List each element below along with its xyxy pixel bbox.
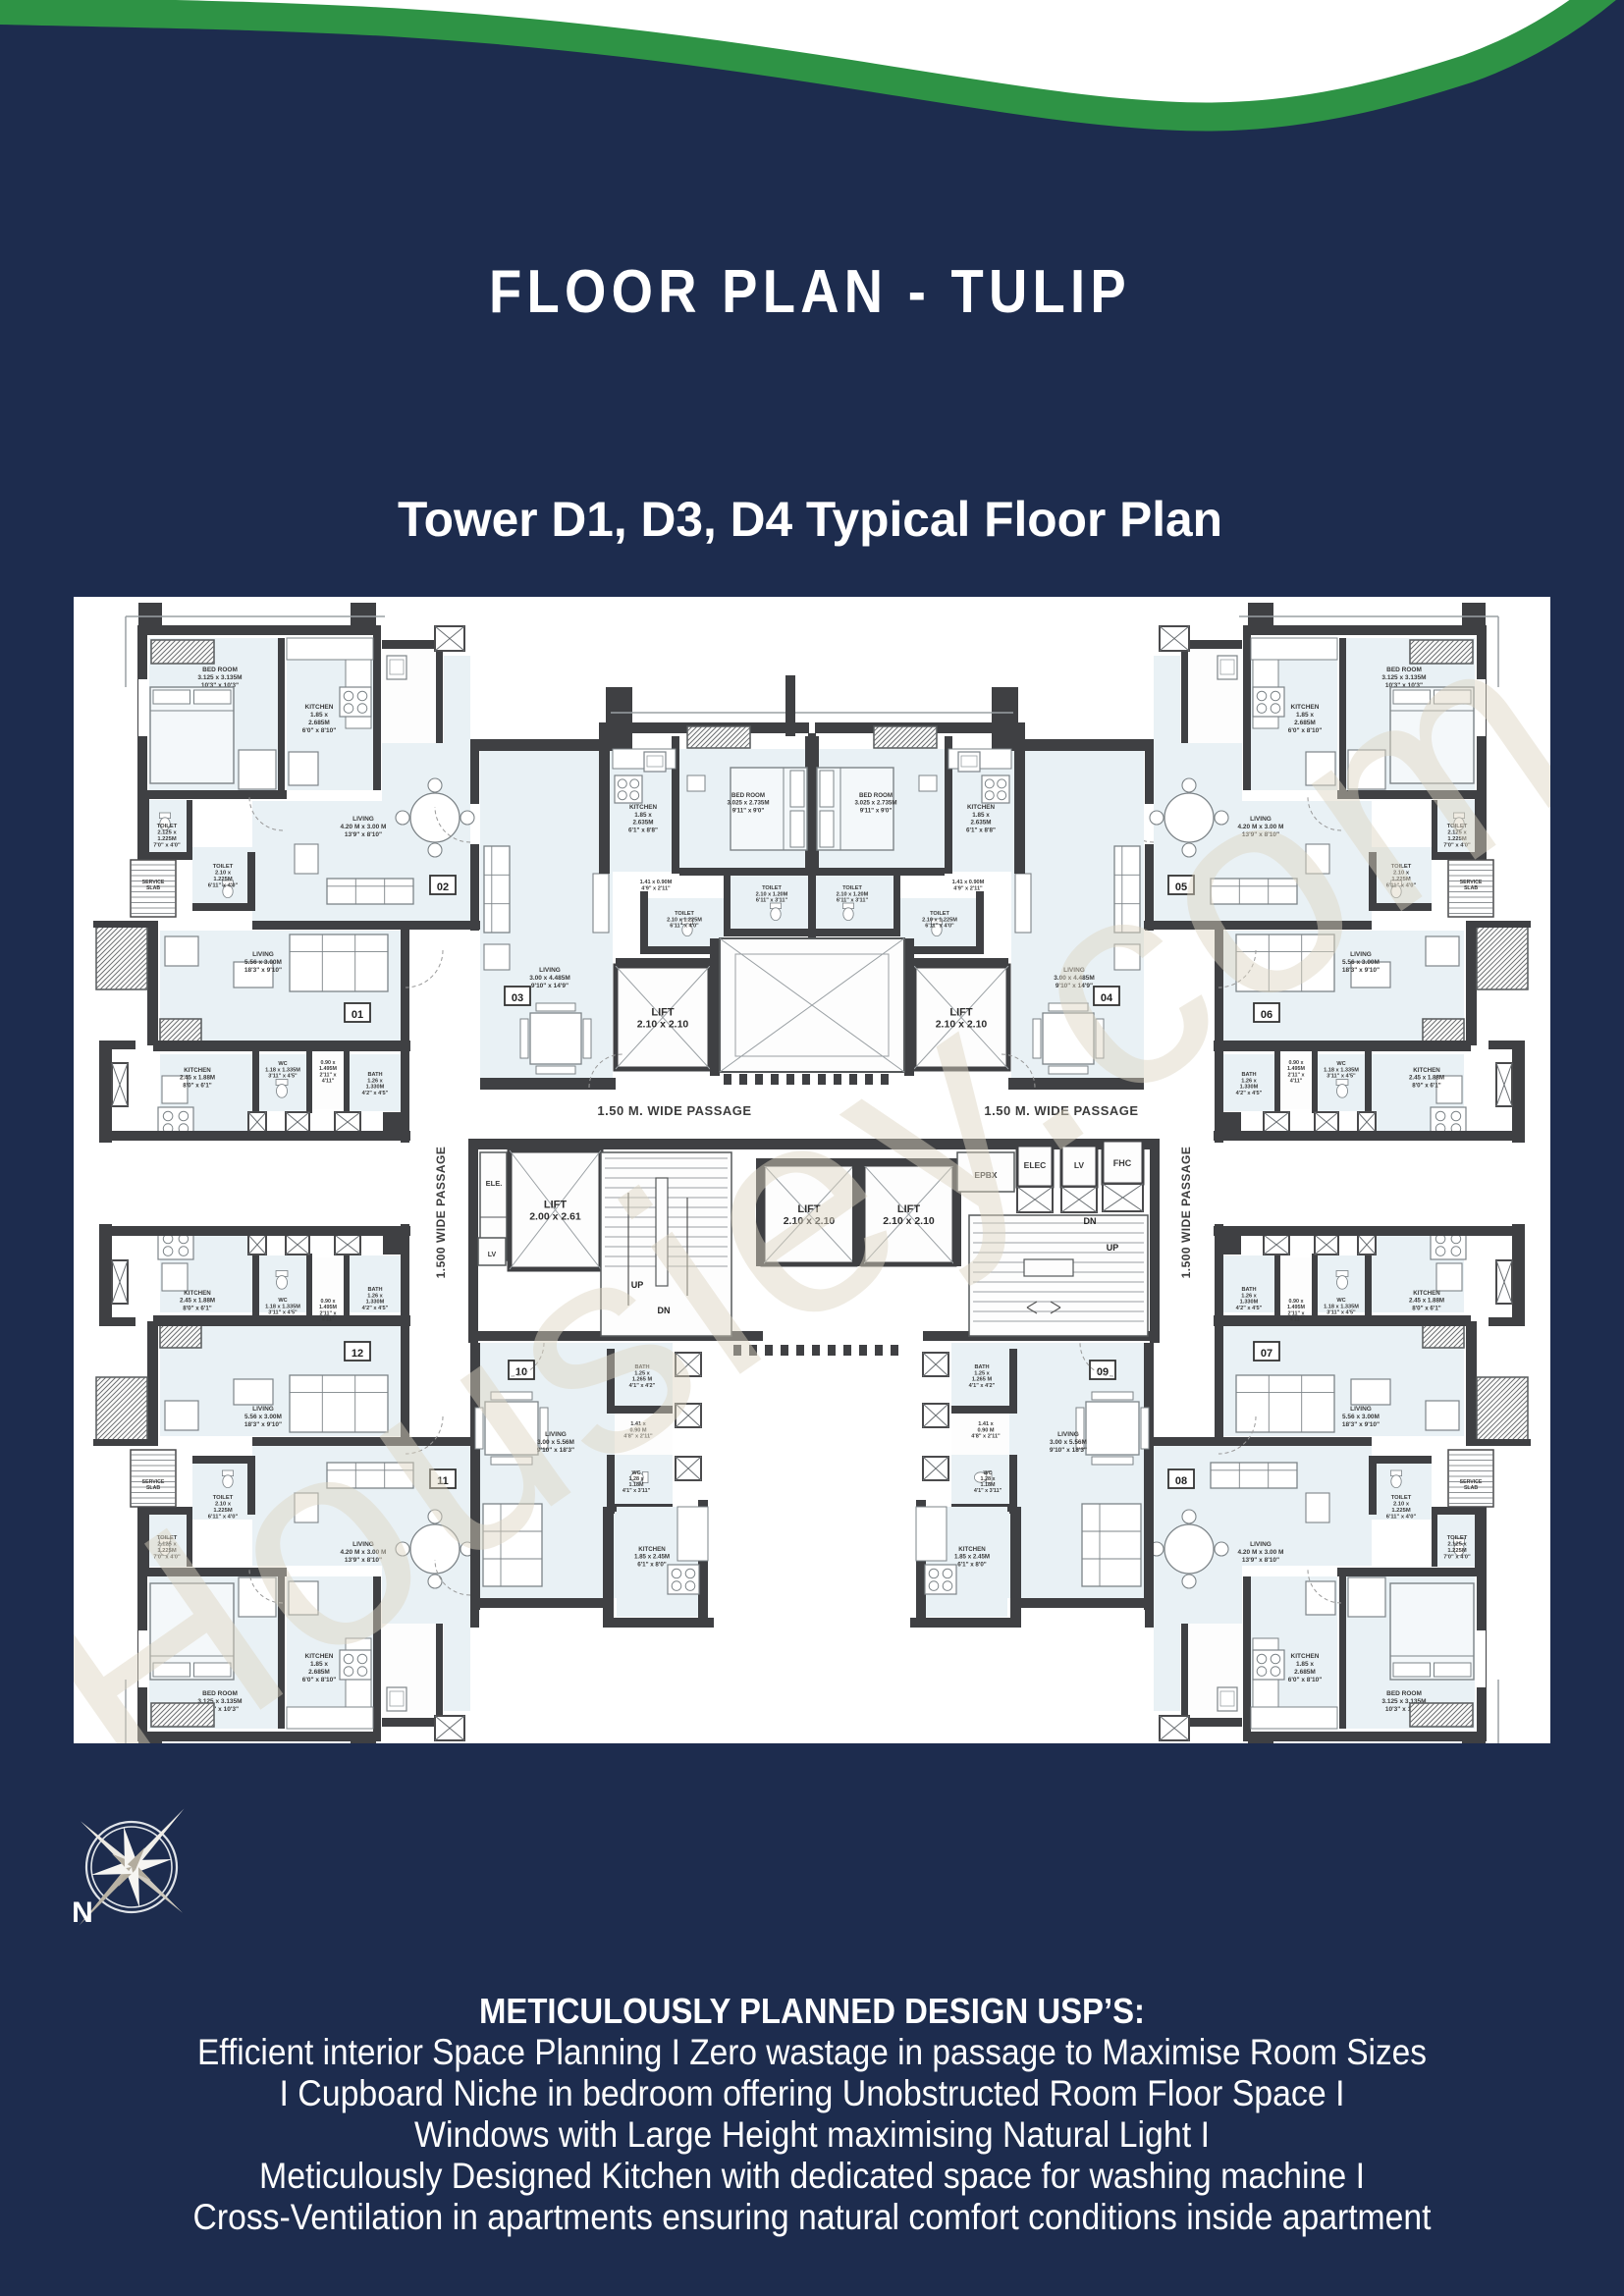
svg-text:Meticulously Designed Kitchen: Meticulously Designed Kitchen with dedic… bbox=[259, 2156, 1365, 2196]
svg-text:KITCHEN2.45 x 1.88M8'0" x 6'1": KITCHEN2.45 x 1.88M8'0" x 6'1" bbox=[180, 1290, 215, 1311]
svg-text:Tower D1, D3, D4 Typical Floor: Tower D1, D3, D4 Typical Floor Plan bbox=[398, 492, 1222, 547]
svg-text:I Cupboard Niche in bedroom of: I Cupboard Niche in bedroom offering Uno… bbox=[280, 2073, 1345, 2113]
svg-text:KITCHEN2.45 x 1.88M8'0" x 6'1": KITCHEN2.45 x 1.88M8'0" x 6'1" bbox=[1409, 1290, 1444, 1311]
svg-text:07: 07 bbox=[1261, 1348, 1272, 1360]
svg-text:1.500 WIDE PASSAGE: 1.500 WIDE PASSAGE bbox=[1179, 1147, 1193, 1279]
svg-text:KITCHEN1.85 x 2.45M6'1" x 8'0": KITCHEN1.85 x 2.45M6'1" x 8'0" bbox=[954, 1546, 990, 1568]
svg-text:KITCHEN1.85 x 2.45M6'1" x 8'0": KITCHEN1.85 x 2.45M6'1" x 8'0" bbox=[634, 1546, 670, 1568]
svg-text:BED ROOM3.025 x 2.735M9'11" x: BED ROOM3.025 x 2.735M9'11" x 9'0" bbox=[727, 792, 769, 814]
svg-text:BED ROOM3.025 x 2.735M9'11" x: BED ROOM3.025 x 2.735M9'11" x 9'0" bbox=[854, 792, 896, 814]
svg-text:08: 08 bbox=[1175, 1475, 1187, 1487]
svg-text:KITCHEN2.45 x 1.88M8'0" x 6'1": KITCHEN2.45 x 1.88M8'0" x 6'1" bbox=[1409, 1067, 1444, 1089]
svg-text:UP: UP bbox=[1107, 1243, 1119, 1253]
svg-text:01: 01 bbox=[352, 1009, 363, 1021]
svg-text:DN: DN bbox=[1084, 1216, 1097, 1226]
svg-text:ELE.: ELE. bbox=[486, 1179, 503, 1188]
svg-text:KITCHEN2.45 x 1.88M8'0" x 6'1": KITCHEN2.45 x 1.88M8'0" x 6'1" bbox=[180, 1067, 215, 1089]
svg-text:BED ROOM3.125 x 3.135M10'3" x: BED ROOM3.125 x 3.135M10'3" x 10'3" bbox=[197, 667, 242, 689]
svg-text:2.10 x 2.10: 2.10 x 2.10 bbox=[637, 1019, 689, 1031]
svg-text:FLOOR PLAN - TULIP: FLOOR PLAN - TULIP bbox=[489, 258, 1131, 326]
svg-text:Windows with Large Height maxi: Windows with Large Height maximising Nat… bbox=[414, 2114, 1210, 2155]
svg-text:N: N bbox=[72, 1896, 93, 1929]
svg-text:02: 02 bbox=[437, 881, 449, 893]
svg-text:03: 03 bbox=[512, 992, 523, 1004]
svg-text:METICULOUSLY PLANNED DESIGN US: METICULOUSLY PLANNED DESIGN USP’S: bbox=[479, 1991, 1145, 2031]
svg-text:KITCHEN1.85 x2.635M6'1" x 8'8": KITCHEN1.85 x2.635M6'1" x 8'8" bbox=[628, 804, 658, 833]
svg-text:Cross-Ventilation in apartment: Cross-Ventilation in apartments ensuring… bbox=[193, 2197, 1433, 2237]
svg-text:1.41 x 0.90M4'9" x 2'11": 1.41 x 0.90M4'9" x 2'11" bbox=[640, 880, 673, 891]
svg-text:LIFT: LIFT bbox=[651, 1007, 674, 1019]
svg-text:Efficient interior Space Plann: Efficient interior Space Planning I Zero… bbox=[197, 2032, 1427, 2072]
svg-text:KITCHEN1.85 x2.635M6'1" x 8'8": KITCHEN1.85 x2.635M6'1" x 8'8" bbox=[966, 804, 996, 833]
